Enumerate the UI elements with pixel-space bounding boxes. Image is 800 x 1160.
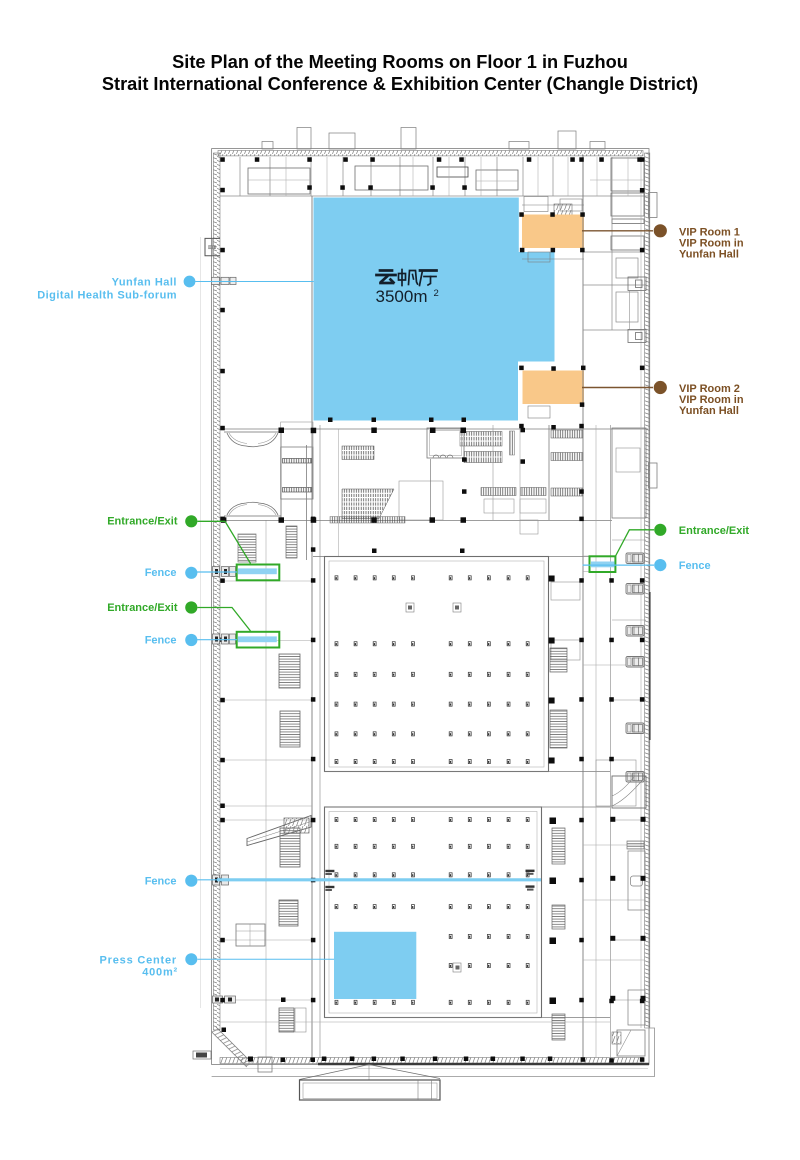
svg-text:Yunfan Hall: Yunfan Hall [679, 405, 739, 417]
svg-text:Fence: Fence [145, 634, 177, 646]
svg-text:VIP Room in: VIP Room in [679, 238, 744, 250]
svg-text:VIP Room in: VIP Room in [679, 394, 744, 406]
svg-text:Site Plan of the Meeting Rooms: Site Plan of the Meeting Rooms on Floor … [172, 52, 628, 72]
svg-text:Entrance/Exit: Entrance/Exit [107, 602, 178, 614]
svg-text:2: 2 [434, 288, 439, 299]
svg-text:Yunfan Hall: Yunfan Hall [679, 249, 739, 261]
svg-text:Fence: Fence [145, 567, 177, 579]
svg-text:400m²: 400m² [142, 967, 178, 979]
svg-text:VIP Room 2: VIP Room 2 [679, 383, 740, 395]
svg-text:VIP Room 1: VIP Room 1 [679, 226, 740, 238]
svg-text:Fence: Fence [679, 560, 711, 572]
svg-text:Digital Health Sub-forum: Digital Health Sub-forum [37, 290, 177, 302]
svg-text:Yunfan Hall: Yunfan Hall [112, 277, 177, 289]
svg-text:Fence: Fence [145, 876, 177, 888]
svg-text:Entrance/Exit: Entrance/Exit [107, 516, 178, 528]
svg-text:Press Center: Press Center [100, 955, 177, 967]
svg-text:3500m: 3500m [376, 287, 428, 306]
svg-text:Strait International Conferenc: Strait International Conference & Exhibi… [102, 74, 698, 94]
svg-text:Entrance/Exit: Entrance/Exit [679, 525, 750, 537]
